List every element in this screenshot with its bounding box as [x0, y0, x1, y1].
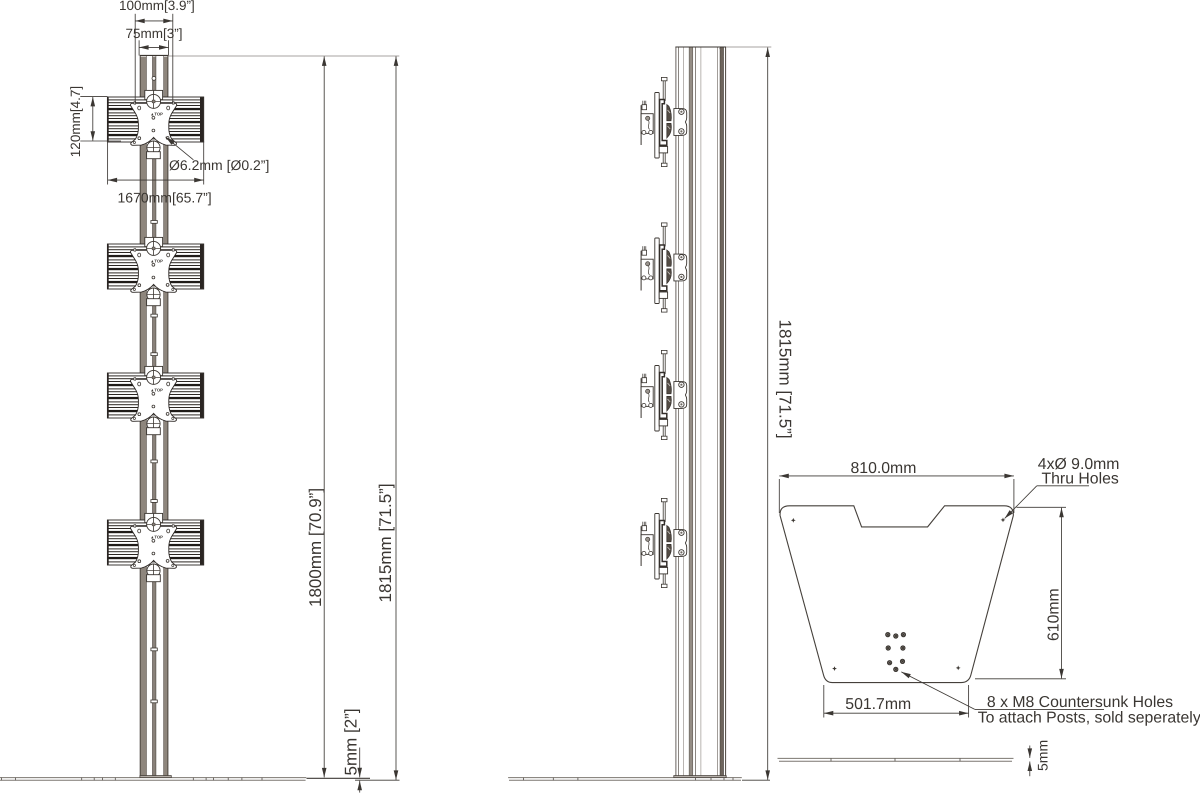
svg-text:75mm[3”]: 75mm[3”] [126, 26, 183, 41]
svg-text:8 x M8 Countersunk Holes: 8 x M8 Countersunk Holes [987, 694, 1173, 711]
svg-text:5mm: 5mm [1034, 740, 1050, 771]
svg-text:810.0mm: 810.0mm [851, 460, 917, 477]
svg-text:Thru Holes: Thru Holes [1042, 471, 1119, 488]
svg-text:610mm: 610mm [1046, 588, 1063, 641]
svg-text:1800mm [70.9”]: 1800mm [70.9”] [306, 488, 325, 607]
svg-text:1670mm[65.7”]: 1670mm[65.7”] [118, 189, 212, 205]
svg-text:501.7mm: 501.7mm [845, 696, 911, 713]
svg-text:To attach Posts, sold seperate: To attach Posts, sold seperately [978, 710, 1200, 727]
svg-text:5mm [2”]: 5mm [2”] [341, 708, 360, 775]
svg-text:1815mm [71.5”]: 1815mm [71.5”] [776, 320, 795, 439]
svg-text:Ø6.2mm [Ø0.2”]: Ø6.2mm [Ø0.2”] [169, 157, 269, 173]
svg-text:100mm[3.9”]: 100mm[3.9”] [119, 0, 195, 13]
svg-text:1815mm [71.5”]: 1815mm [71.5”] [376, 483, 395, 602]
svg-text:120mm[4.7]: 120mm[4.7] [68, 86, 83, 157]
